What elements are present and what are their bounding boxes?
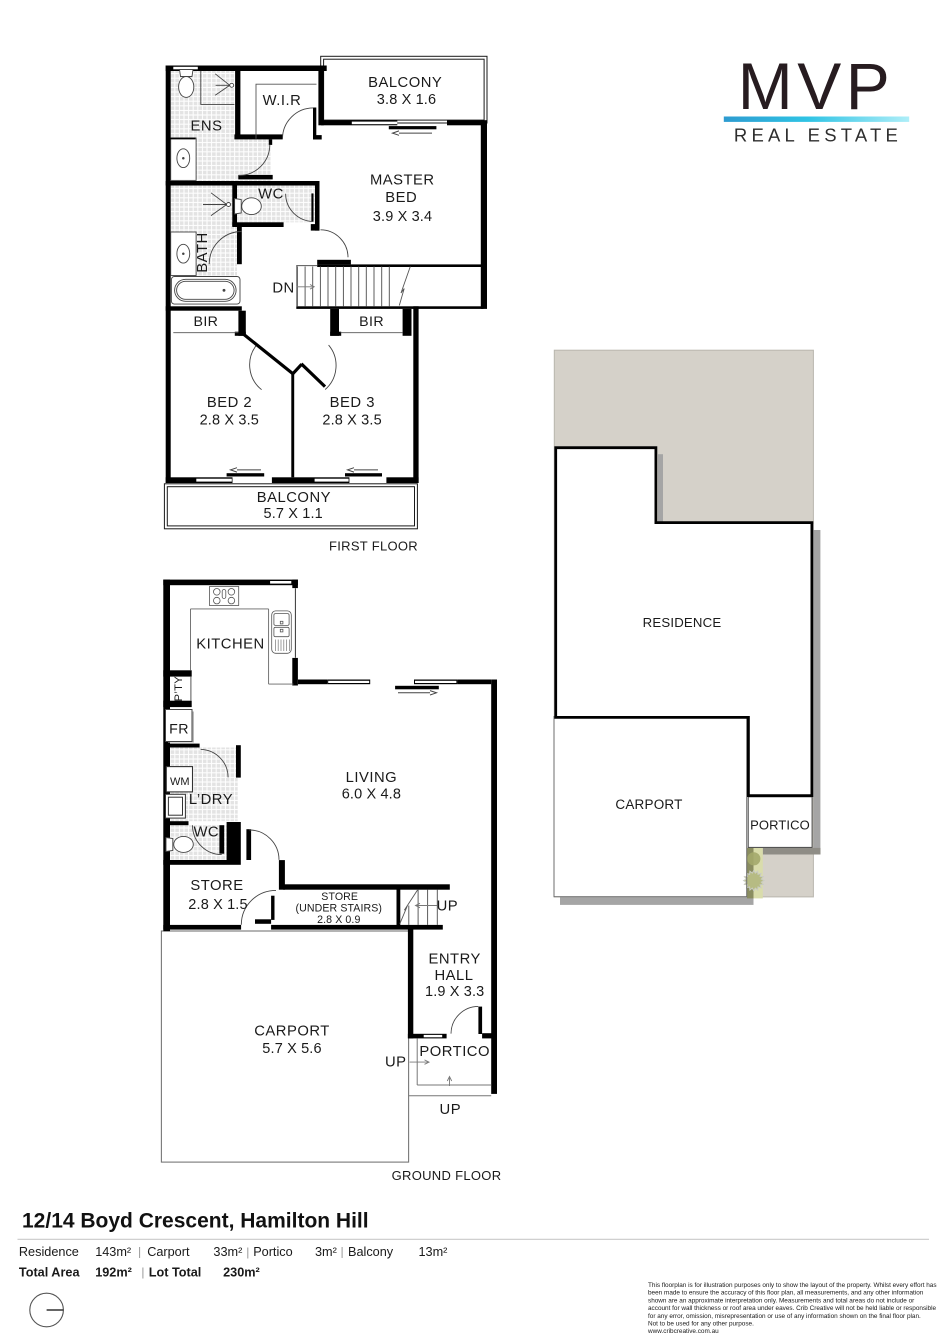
svg-text:ENTRY: ENTRY [429,952,481,968]
svg-text:6.0 X 4.8: 6.0 X 4.8 [342,786,401,802]
svg-text:W.I.R: W.I.R [263,93,302,109]
svg-text:P’TY: P’TY [173,676,185,702]
svg-text:FIRST FLOOR: FIRST FLOOR [329,539,418,554]
svg-text:3m²: 3m² [315,1245,337,1259]
svg-text:BED: BED [385,190,417,206]
svg-text:UP: UP [385,1055,407,1071]
svg-text:account for wall thickness or: account for wall thickness or roof area … [648,1305,937,1312]
svg-text:UP: UP [437,899,459,915]
svg-text:BALCONY: BALCONY [257,490,331,506]
svg-text:Carport: Carport [147,1245,190,1259]
svg-text:DN: DN [272,281,294,297]
svg-text:230m²: 230m² [223,1265,260,1279]
svg-text:BIR: BIR [359,314,384,330]
svg-text:ENS: ENS [191,119,223,135]
svg-text:FR: FR [169,722,189,738]
svg-text:CARPORT: CARPORT [615,797,682,812]
svg-text:WM: WM [170,776,190,788]
svg-text:STORE: STORE [190,878,243,894]
svg-text:This floorplan is for illustra: This floorplan is for illustration purpo… [648,1282,937,1289]
svg-text:for any error, omission, misre: for any error, omission, misrepresentati… [648,1313,921,1320]
svg-text:Portico: Portico [253,1245,293,1259]
svg-text:5.7 X 5.6: 5.7 X 5.6 [262,1041,321,1057]
svg-text:2.8 X 3.5: 2.8 X 3.5 [200,413,259,429]
svg-text:(UNDER STAIRS): (UNDER STAIRS) [296,903,383,915]
svg-text:KITCHEN: KITCHEN [196,637,264,653]
svg-text:Not to be used for any other p: Not to be used for any other purpose. [648,1320,754,1327]
svg-text:192m²: 192m² [95,1265,132,1279]
svg-text:www.cribcreative.com.au: www.cribcreative.com.au [647,1328,719,1335]
svg-text:BATH: BATH [195,232,211,272]
svg-text:CARPORT: CARPORT [254,1023,330,1039]
svg-text:33m²: 33m² [213,1245,242,1259]
svg-text:PORTICO: PORTICO [750,817,810,832]
svg-text:LIVING: LIVING [346,770,398,786]
svg-text:BED 2: BED 2 [207,395,252,411]
svg-text:143m²: 143m² [95,1245,131,1259]
svg-text:Total Area: Total Area [19,1265,81,1279]
svg-text:HALL: HALL [434,968,473,984]
svg-text:L’DRY: L’DRY [189,792,233,808]
svg-text:3.9 X 3.4: 3.9 X 3.4 [373,209,432,225]
svg-text:Balcony: Balcony [348,1245,394,1259]
svg-text:STORE: STORE [321,891,358,903]
svg-text:12/14 Boyd Crescent, Hamilton: 12/14 Boyd Crescent, Hamilton Hill [22,1210,369,1233]
svg-text:UP: UP [440,1102,462,1118]
svg-text:2.8 X 3.5: 2.8 X 3.5 [322,413,381,429]
svg-text:PORTICO: PORTICO [419,1044,490,1060]
svg-text:2.8 X 1.5: 2.8 X 1.5 [188,897,247,913]
svg-text:WC: WC [258,187,284,203]
svg-text:been made to ensure the accura: been made to ensure the accuracy of this… [648,1290,924,1297]
svg-text:WC: WC [193,824,219,840]
svg-text:13m²: 13m² [419,1245,448,1259]
svg-text:Residence: Residence [19,1245,79,1259]
svg-text:BED 3: BED 3 [330,395,375,411]
svg-text:3.8 X 1.6: 3.8 X 1.6 [377,92,436,108]
svg-text:Lot Total: Lot Total [149,1265,202,1279]
svg-text:RESIDENCE: RESIDENCE [643,615,722,630]
svg-text:2.8 X 0.9: 2.8 X 0.9 [317,914,360,926]
svg-text:REAL ESTATE: REAL ESTATE [734,125,902,146]
svg-text:5.7 X 1.1: 5.7 X 1.1 [263,506,322,522]
svg-text:shown are an approximate inter: shown are an approximate interpretation … [648,1297,915,1304]
svg-text:MVP: MVP [738,49,895,123]
svg-text:GROUND FLOOR: GROUND FLOOR [392,1168,502,1183]
svg-text:BIR: BIR [193,314,218,330]
svg-text:BALCONY: BALCONY [368,75,442,91]
svg-text:1.9 X 3.3: 1.9 X 3.3 [425,984,484,1000]
svg-text:MASTER: MASTER [370,173,435,189]
